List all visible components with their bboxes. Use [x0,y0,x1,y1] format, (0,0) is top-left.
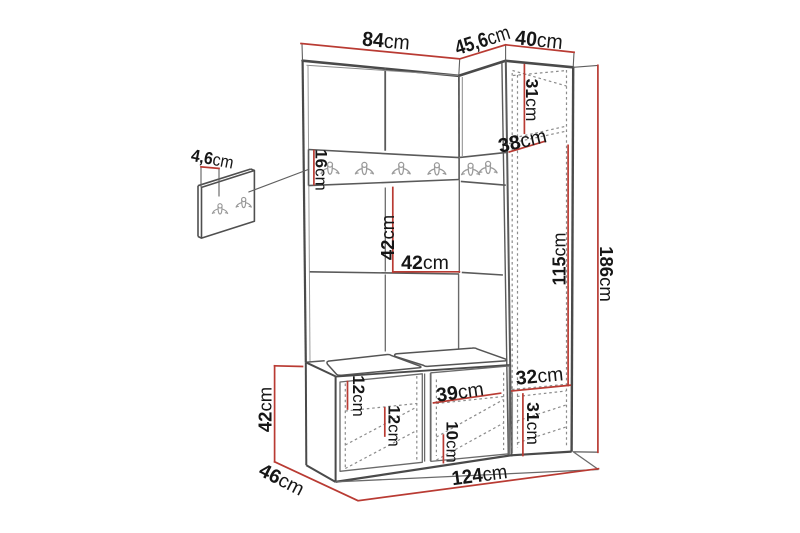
svg-text:16cm: 16cm [312,149,331,191]
svg-text:31cm: 31cm [522,79,542,122]
svg-text:12cm: 12cm [385,405,404,447]
svg-text:42cm: 42cm [401,252,449,274]
svg-text:115cm: 115cm [550,232,570,285]
svg-text:31cm: 31cm [523,402,543,445]
svg-text:12cm: 12cm [350,375,369,417]
svg-text:32cm: 32cm [515,363,565,389]
svg-text:42cm: 42cm [377,215,398,260]
svg-text:10cm: 10cm [443,421,462,463]
svg-text:186cm: 186cm [597,246,618,302]
svg-text:84cm: 84cm [361,28,410,55]
svg-text:42cm: 42cm [254,387,275,432]
